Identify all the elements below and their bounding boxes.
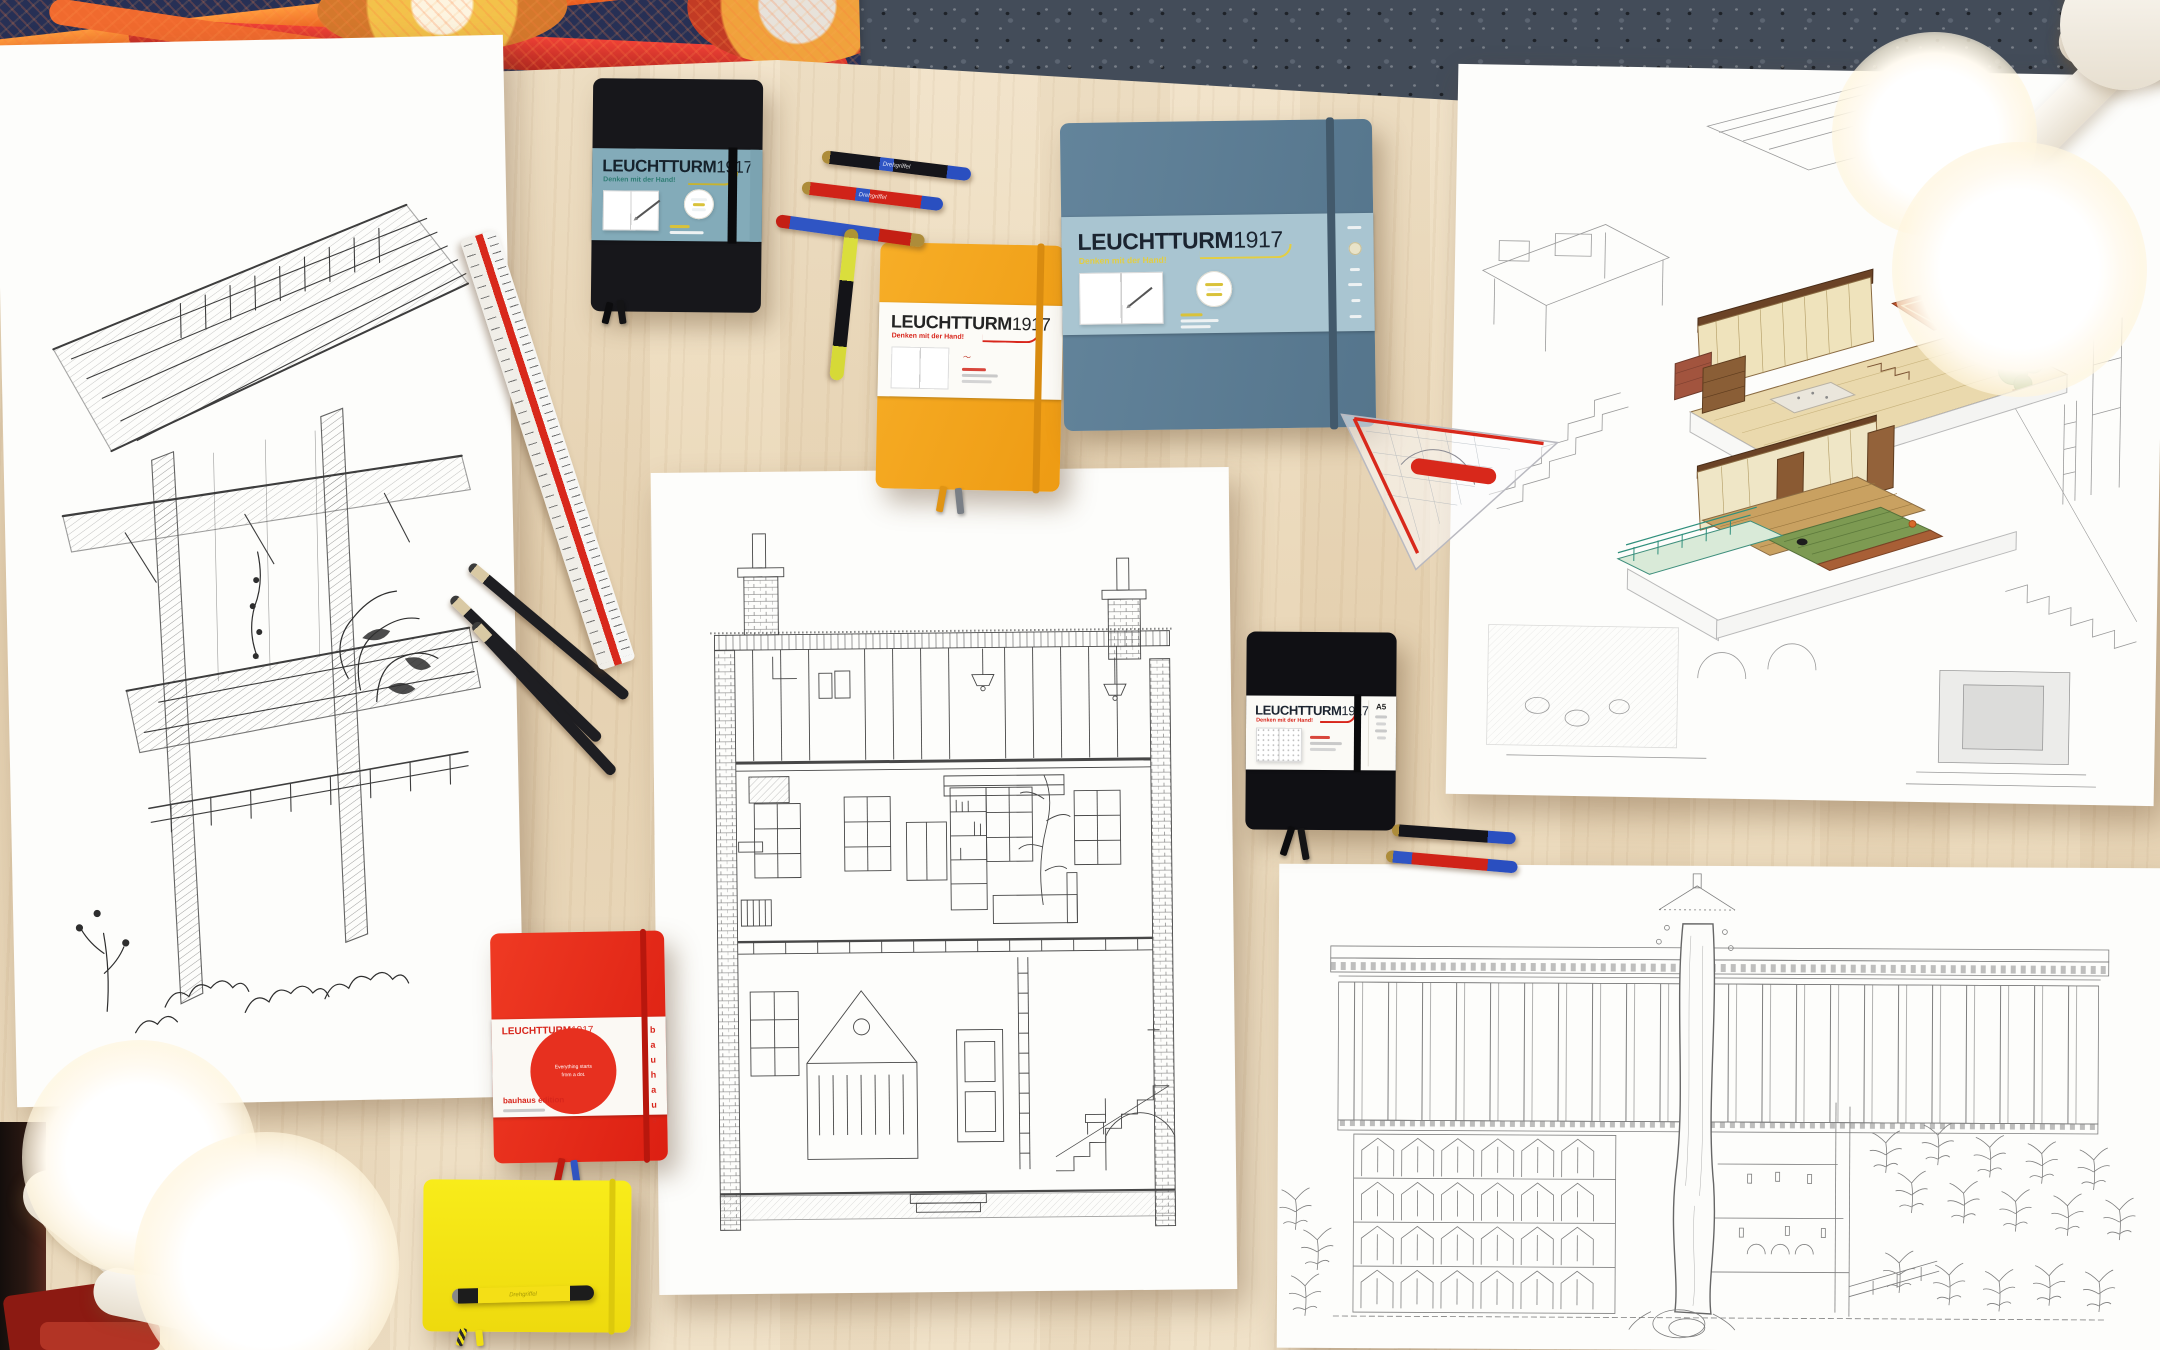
notebook-red-bauhaus: LEUCHTTURM1917 Everything starts from a … xyxy=(490,930,668,1163)
dotted-pages-graphic xyxy=(1256,728,1302,762)
notebook-orange: LEUCHTTURM1917 Denken mit der Hand! 〜 xyxy=(875,242,1064,492)
fineprint-bar xyxy=(962,374,998,378)
desk-scene: LEUCHTTURM1917 Denken mit der Hand! LEUC… xyxy=(0,0,2160,1350)
round-badge xyxy=(684,189,714,219)
circle-text-line2: from a dot. xyxy=(561,1072,585,1078)
sheet-tree-tower-section xyxy=(1277,864,2160,1350)
brand-tagline: Denken mit der Hand! xyxy=(1256,718,1313,724)
tree-tower-drawing xyxy=(1277,864,2160,1350)
notebook-black-small-band: LEUCHTTURM1917 Denken mit der Hand! A5 xyxy=(1246,695,1397,770)
spine-icon xyxy=(1351,299,1360,302)
fineprint-bar xyxy=(670,225,690,228)
brand-tagline: Denken mit der Hand! xyxy=(1079,255,1167,266)
elastic-band xyxy=(1354,694,1362,772)
elastic-band xyxy=(608,1179,615,1335)
atrium-lines xyxy=(50,204,487,1007)
set-square xyxy=(1315,321,1580,586)
fineprint-bar xyxy=(670,231,704,234)
elastic-band xyxy=(727,148,737,244)
spine-icon xyxy=(1347,226,1361,229)
spine-band xyxy=(750,150,763,242)
tree-tower-lines xyxy=(1279,872,2137,1340)
light-bulb-glow xyxy=(1892,142,2147,397)
fineprint-bar xyxy=(1310,742,1342,745)
fineprint-bar xyxy=(503,1109,545,1113)
size-strip: A5 xyxy=(1368,700,1393,766)
fineprint-bar xyxy=(1181,319,1219,323)
fineprint-bar xyxy=(1310,736,1330,739)
page-count-badge xyxy=(1348,242,1361,255)
spine-icon xyxy=(1348,283,1362,286)
atrium-plants xyxy=(69,548,446,1034)
atrium-drawing xyxy=(0,35,525,1107)
poster-under-lamp-2 xyxy=(40,1322,160,1350)
fineprint-bar xyxy=(1181,325,1211,328)
townhouse-lines xyxy=(709,530,1179,1231)
sheet-atrium-sketch xyxy=(0,35,525,1107)
tagline-swoosh xyxy=(1320,713,1356,723)
spine-icon xyxy=(1350,268,1360,271)
sheet-townhouse-section xyxy=(651,467,1238,1295)
brand-tagline: Denken mit der Hand! xyxy=(603,176,675,184)
round-badge xyxy=(1196,271,1232,307)
pages-graphic xyxy=(1079,272,1164,325)
circle-text-line1: Everything starts xyxy=(555,1064,592,1071)
notebook-black-top: LEUCHTTURM1917 Denken mit der Hand! xyxy=(591,78,763,313)
notebook-black-small: LEUCHTTURM1917 Denken mit der Hand! A5 xyxy=(1245,631,1396,830)
tagline-swoosh xyxy=(983,328,1041,343)
softcover-script: 〜 xyxy=(962,352,970,363)
bauhaus-vertical-label: bauhaus xyxy=(648,1025,659,1107)
spine-icon-column xyxy=(1341,213,1369,331)
townhouse-drawing xyxy=(651,467,1238,1295)
size-label: A5 xyxy=(1376,702,1386,711)
fineprint-bar xyxy=(962,380,992,384)
pencil-glyph xyxy=(1128,287,1153,307)
fineprint-bar xyxy=(962,368,986,372)
notebook-yellow xyxy=(422,1179,631,1332)
pen-model-script: Drehgriffel xyxy=(509,1291,537,1298)
pages-graphic xyxy=(603,190,659,231)
pages-graphic xyxy=(891,346,950,389)
fineprint-bar xyxy=(1310,748,1336,751)
fineprint-bar xyxy=(1181,313,1203,316)
pencil-glyph xyxy=(635,200,660,220)
pen-model-script: Drehgriffel xyxy=(882,161,910,170)
brand-tagline: Denken mit der Hand! xyxy=(892,332,964,341)
spine-icon xyxy=(1350,315,1362,318)
pen-model-script: Drehgriffel xyxy=(858,191,886,200)
edition-label: bauhaus edition xyxy=(503,1095,564,1105)
tagline-swoosh xyxy=(1200,244,1292,259)
